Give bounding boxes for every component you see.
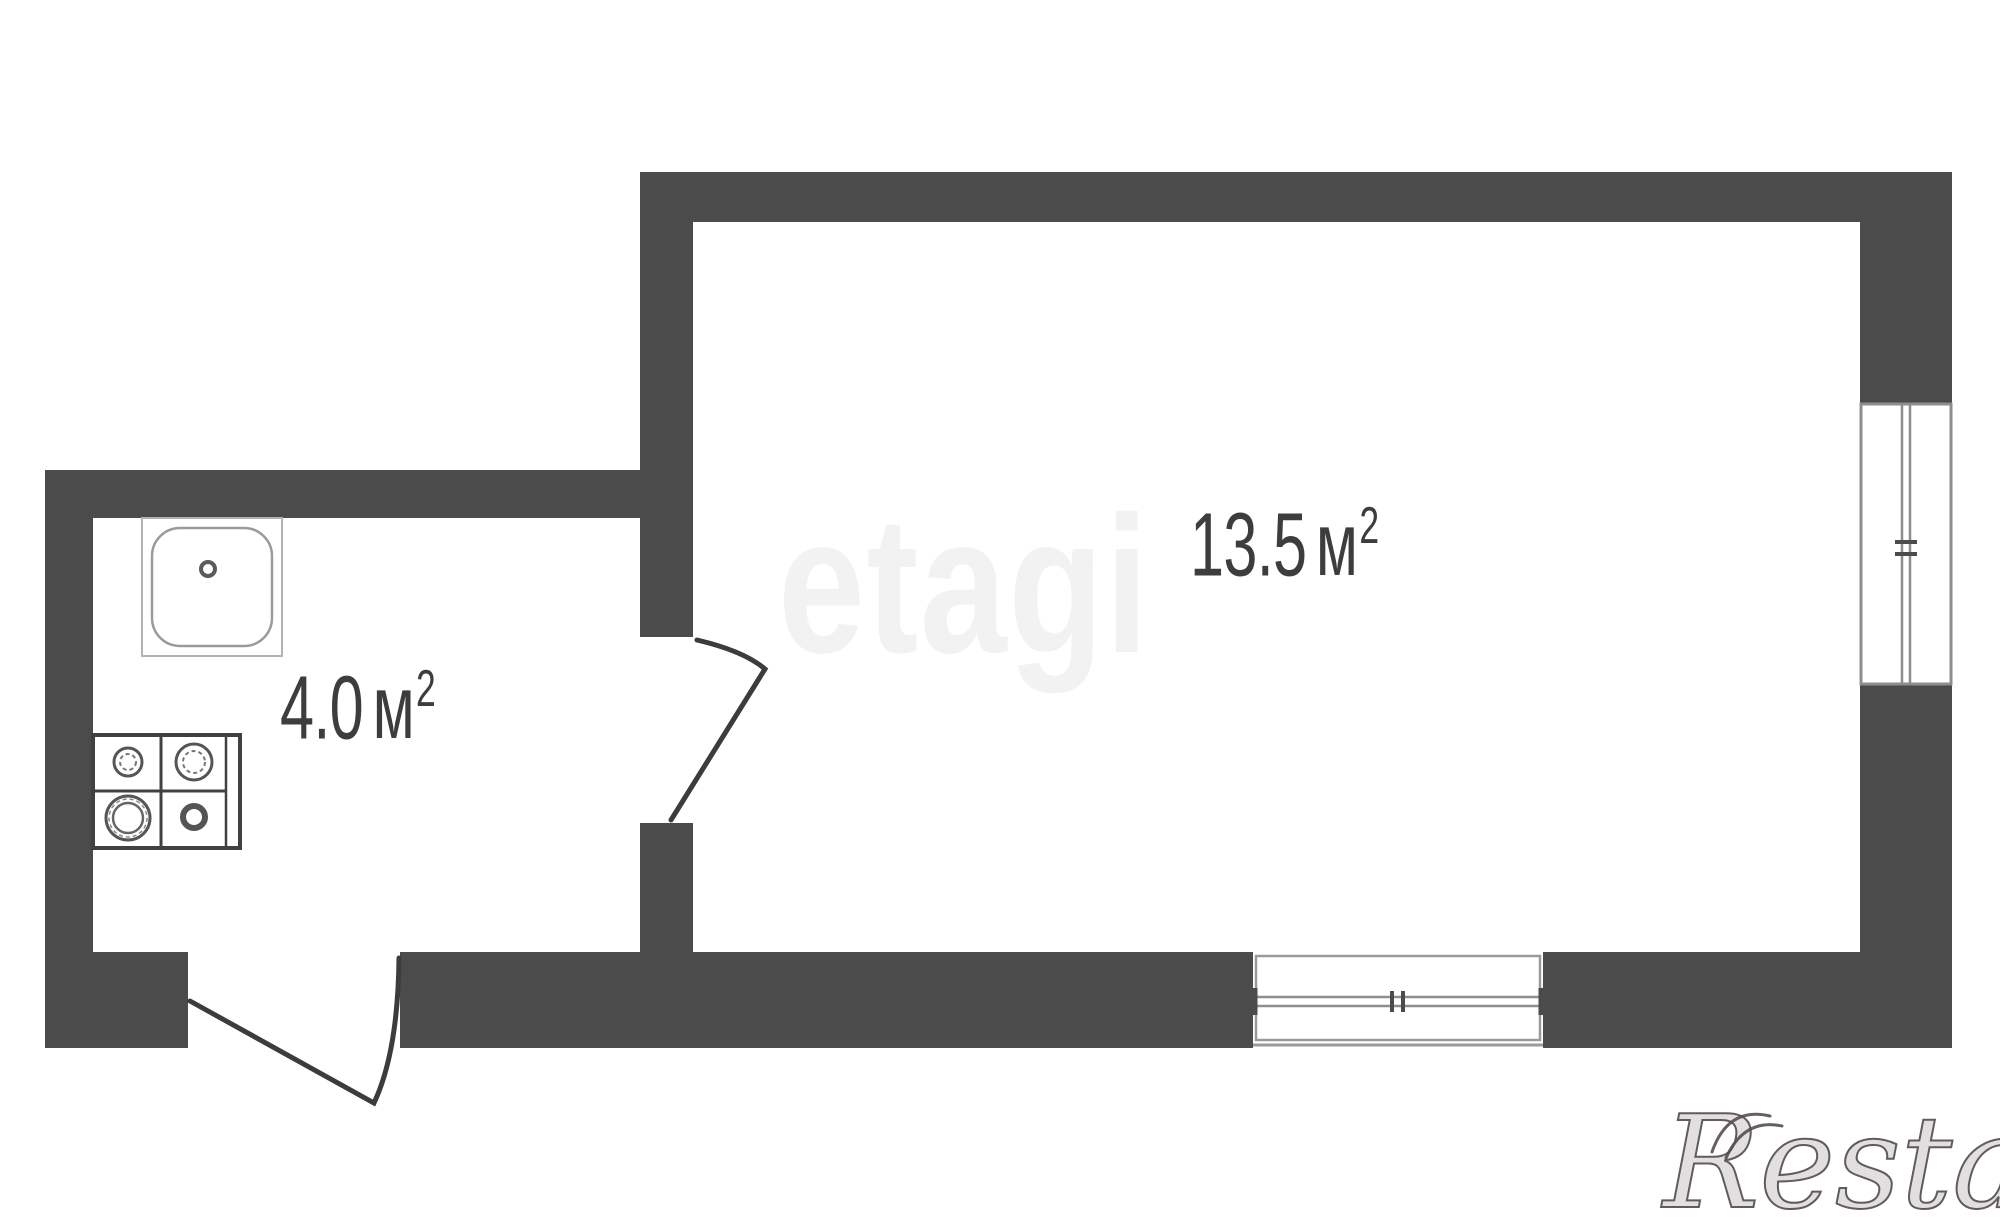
door-living-room-icon <box>671 640 765 820</box>
sink-icon <box>142 518 282 656</box>
watermark-restate: Restate <box>1663 1100 2000 1223</box>
window-bottom-icon <box>1253 952 1543 1048</box>
kitchen-sup: 2 <box>416 660 435 718</box>
window-right-icon <box>1861 404 1951 684</box>
living-room-area: 13.5 <box>1190 495 1306 595</box>
wall-right-upper <box>1860 172 1952 403</box>
walls <box>45 172 1952 1048</box>
wall-kitchen-top <box>45 470 640 518</box>
living-room-sup: 2 <box>1359 497 1378 555</box>
kitchen-area: 4.0 <box>280 658 363 758</box>
room-label-living-room: 13.5м2 <box>1190 500 1378 590</box>
wall-kitchen-left <box>45 470 93 1048</box>
wall-bottom-right <box>1543 952 1952 1048</box>
wall-bottom-middle <box>400 952 1253 1048</box>
wall-partition-lower <box>640 823 693 952</box>
floorplan-image: etagi <box>0 0 2000 1223</box>
stove-icon <box>93 735 240 848</box>
living-room-unit: м <box>1316 495 1357 595</box>
wall-top <box>640 172 1952 222</box>
kitchen-unit: м <box>373 658 414 758</box>
door-entry-icon <box>190 958 399 1103</box>
wall-partition-upper <box>640 172 693 637</box>
room-label-kitchen: 4.0м2 <box>280 663 435 753</box>
floorplan-drawing <box>0 0 2000 1223</box>
